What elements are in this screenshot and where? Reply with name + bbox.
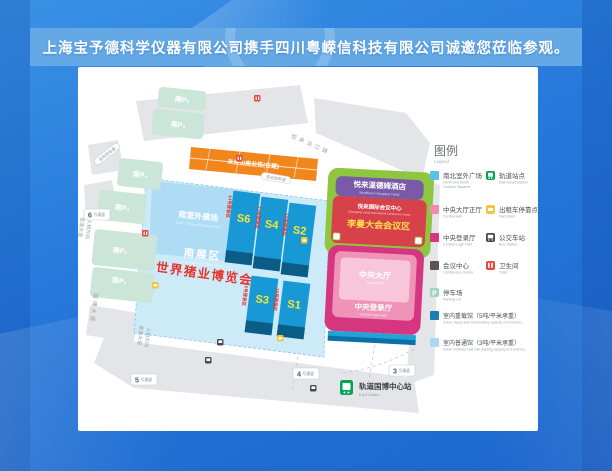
venue-map-card: 南室外展场 South Outdoor Exhibition Area 南P₆ … [78, 67, 538, 431]
legend-swatch [430, 205, 439, 214]
gate-suffix: 号通道 [303, 371, 315, 376]
legend-swatch [430, 338, 439, 347]
central-hall-core [339, 257, 411, 303]
toilet-icon [236, 155, 243, 162]
gate-num: 3 [393, 367, 397, 376]
legend-swatch [430, 233, 439, 242]
legend-sublabel: Toilet [499, 271, 507, 275]
legend-sublabel: Conference Center [443, 271, 474, 275]
toilet-icon [142, 230, 149, 237]
gate-num: 5 [135, 376, 139, 385]
legend-label: 南北室外广场 [443, 171, 483, 180]
legend-label: 会议中心 [443, 261, 470, 270]
legend-sublabel: Bus Station [499, 243, 517, 247]
gate-suffix: 号通道 [94, 212, 106, 217]
legend-label: 中央大厅正厅 [443, 205, 483, 214]
legend-sublabel: Central Login Hall [443, 243, 472, 247]
hall-s3-label: S3 [255, 293, 270, 307]
legend-title: 图例 [434, 144, 458, 158]
legend-label: 出租车停靠点 [499, 205, 538, 214]
legend-sublabel: North and South [443, 181, 469, 185]
legend-toilet-icon [486, 261, 495, 270]
venue-map: 南室外展场 South Outdoor Exhibition Area 南P₆ … [78, 67, 538, 431]
legend-swatch [430, 311, 439, 320]
legend-sublabel: Indoor Heavy-load Hall (loading capacity… [443, 321, 522, 325]
bus-icon [217, 339, 224, 346]
bus-icon [205, 357, 212, 364]
legend-sublabel: Rail transit station [499, 181, 528, 185]
legend-swatch [430, 171, 439, 180]
gate-suffix: 号通道 [399, 368, 411, 373]
legend-label: 卫生间 [499, 261, 519, 270]
legend-label: 室内重载馆（5吨/平米承重） [443, 312, 520, 320]
legend-sublabel: Central Hall [443, 215, 462, 219]
invite-banner-text: 上海宝予德科学仪器有限公司携手四川粤嵘信科技有限公司诚邀您莅临参观。 [43, 37, 570, 58]
hall-s2-label: S2 [292, 224, 307, 238]
legend-sublabel: Taxi stand [499, 215, 515, 219]
taxi-icon [277, 335, 284, 342]
rail-station-label-en: Expo Station [359, 393, 379, 397]
gate-5-badge: 5 号通道 [131, 374, 157, 385]
invite-banner: 上海宝予德科学仪器有限公司携手四川粤嵘信科技有限公司诚邀您莅临参观。 [30, 28, 582, 66]
legend-sublabel: Parking Lot [443, 298, 461, 302]
central-complex: 悦来温德姆酒店 Wyndham Chongqing Yuelai 悦来国际会议中… [320, 167, 435, 345]
hall-s4-label: S4 [264, 218, 280, 232]
gate-3-badge: 3 号通道 [389, 365, 415, 376]
legend-sublabel: Indoor Ordinary-load Hall (loading capac… [443, 348, 525, 352]
taxi-icon [301, 237, 308, 244]
legend-label: 轨道站点 [499, 171, 526, 180]
right-edge-band [582, 0, 612, 471]
left-edge-band [0, 0, 30, 471]
legend-bus-icon [486, 233, 495, 242]
legend-label: 停车场 [443, 288, 463, 297]
legend-label: 室内普通馆（3吨/平米承重） [443, 339, 520, 347]
legend-taxi-icon [486, 205, 495, 214]
legend-label: 公交车站 [499, 233, 526, 242]
toilet-icon [254, 95, 261, 102]
rail-station-label: 轨道国博中心站 [359, 381, 412, 391]
legend-parking-glyph: P [432, 291, 437, 298]
bus-icon [310, 385, 317, 392]
hall-s6-label: S6 [236, 212, 251, 226]
legend: 图例 Legend 南北室外广场 North and South Outdoor… [430, 144, 538, 352]
legend-label: 中央登录厅 [443, 233, 476, 242]
legend-swatch [430, 261, 439, 270]
future-hill-building: 未来山商业街(在建) [189, 147, 318, 181]
gate-suffix: 号通道 [141, 377, 153, 382]
central-login-label: 中央登录厅 [354, 301, 392, 313]
gate-4-badge: 4 号通道 [293, 368, 319, 379]
hall-s1-label: S1 [287, 298, 302, 312]
invitation-graphic: 上海宝予德科学仪器有限公司携手四川粤嵘信科技有限公司诚邀您莅临参观。 [0, 0, 612, 471]
legend-title-en: Legend [434, 159, 450, 164]
legend-sublabel: Outdoor Squares [443, 185, 471, 189]
escalator-icon [333, 233, 340, 240]
taxi-icon [152, 282, 159, 289]
central-hall-label: 中央大厅 [359, 269, 391, 281]
legend-rail-icon [486, 171, 495, 180]
escalator-icon [415, 237, 422, 244]
